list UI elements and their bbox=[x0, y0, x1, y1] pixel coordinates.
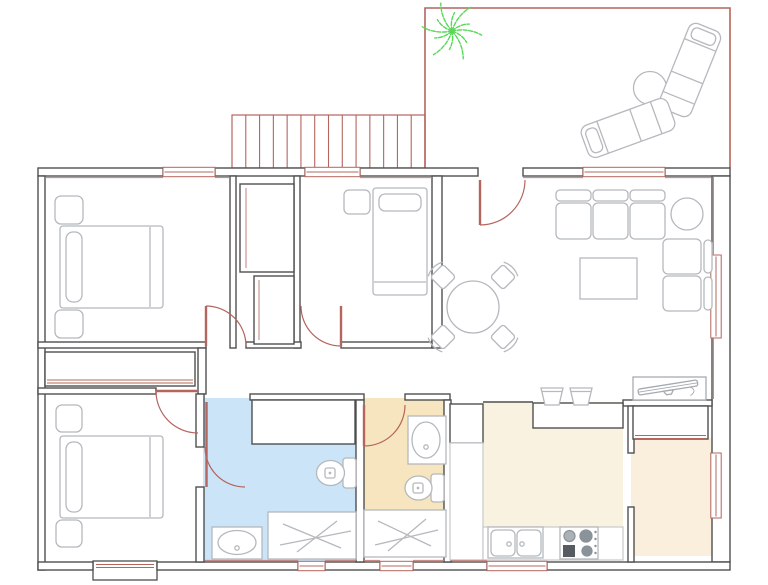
toilet-flush-dot bbox=[417, 487, 420, 490]
palm-frond bbox=[452, 7, 470, 31]
side-table bbox=[671, 198, 703, 230]
wall-top-4 bbox=[523, 168, 583, 176]
corner-sofa-seat bbox=[663, 239, 701, 274]
sofa-back-cushion bbox=[593, 190, 628, 201]
wall-bathrooms-top-a bbox=[250, 394, 364, 400]
floor-plan-canvas bbox=[0, 0, 768, 585]
door-bedroom1 bbox=[206, 306, 246, 346]
wall-bathrooms-top-b bbox=[405, 394, 450, 400]
breakfast-bar bbox=[533, 403, 623, 428]
nightstand bbox=[55, 196, 83, 224]
storage-closet bbox=[633, 406, 708, 439]
wall-top-5 bbox=[665, 168, 730, 176]
wall-living-storage bbox=[623, 400, 712, 406]
wall-bottom-5 bbox=[547, 562, 730, 570]
wall-top-3 bbox=[360, 168, 478, 176]
wall-left bbox=[38, 176, 45, 570]
toilet-tank bbox=[431, 474, 444, 502]
bed-pillow bbox=[66, 232, 82, 302]
living-room-furniture bbox=[541, 190, 712, 405]
corner-sofa-seat bbox=[663, 276, 701, 311]
nightstand bbox=[56, 405, 82, 432]
wall-bottom-3 bbox=[325, 562, 380, 570]
dining-table bbox=[447, 281, 499, 333]
sink-drain bbox=[235, 546, 239, 550]
coffee-table bbox=[580, 258, 637, 299]
door-terrace bbox=[480, 180, 525, 225]
wall-bottom-2 bbox=[157, 562, 298, 570]
wall-bedroom1-bottom bbox=[38, 342, 206, 348]
palm-tree bbox=[422, 3, 481, 59]
exterior-stairs bbox=[232, 115, 425, 168]
kitchen-left-counter bbox=[450, 443, 483, 560]
door-bedroom3 bbox=[156, 391, 198, 433]
kitchen-closet bbox=[450, 404, 483, 443]
stove-knob bbox=[594, 538, 596, 540]
nightstand bbox=[344, 190, 370, 214]
wall-bedroom1-closets bbox=[230, 176, 236, 348]
bed-pillow bbox=[379, 194, 421, 211]
dining-chair bbox=[490, 324, 520, 354]
nightstand bbox=[55, 310, 83, 338]
toilet-flush-dot bbox=[329, 472, 332, 475]
sofa-seat-cushion bbox=[630, 203, 665, 239]
wall-top-2 bbox=[215, 168, 305, 176]
sofa-seat-cushion bbox=[556, 203, 591, 239]
bar-stool bbox=[541, 388, 563, 405]
wall-bedroom2-living bbox=[432, 176, 442, 348]
stove-knob bbox=[594, 531, 596, 533]
stove-burner-square bbox=[563, 545, 575, 557]
sun-lounger-2 bbox=[579, 96, 677, 159]
window-bottom-bath1 bbox=[298, 561, 325, 570]
door-bedroom2-swing-arc bbox=[301, 306, 341, 346]
wall-bottom-4 bbox=[413, 562, 487, 570]
door-bedroom3-swing-arc bbox=[156, 391, 198, 433]
palm-trunk-center bbox=[450, 29, 455, 34]
wall-storage-left-b bbox=[628, 507, 634, 562]
stove-burner bbox=[582, 546, 592, 556]
wall-bottom-1 bbox=[38, 562, 93, 570]
door-bedroom2 bbox=[301, 306, 341, 346]
stove-knob bbox=[594, 545, 596, 547]
stove-burner bbox=[564, 531, 575, 542]
chair-seat bbox=[490, 324, 515, 349]
bedroom2-furniture bbox=[344, 188, 427, 295]
wall-hall-stub bbox=[198, 348, 206, 394]
bedroom3-furniture bbox=[56, 405, 163, 547]
closet-upper bbox=[240, 184, 294, 272]
floor-plan-svg bbox=[0, 0, 768, 585]
window-bedroom1-top bbox=[163, 167, 215, 176]
window-storage-right bbox=[711, 453, 721, 518]
bedroom3-wardrobe bbox=[45, 352, 195, 386]
chair-seat bbox=[490, 264, 515, 289]
nightstand bbox=[56, 520, 82, 547]
sink-basin bbox=[412, 422, 440, 458]
corner-sofa-back bbox=[704, 277, 712, 310]
closet-lower bbox=[254, 276, 294, 344]
wall-closets-bedroom2 bbox=[294, 176, 300, 348]
wall-bedroom2-bottom bbox=[341, 342, 432, 348]
sink-basin bbox=[218, 531, 256, 555]
door-bedroom1-swing-arc bbox=[206, 306, 246, 346]
entry-porch bbox=[93, 561, 157, 580]
wall-top-1 bbox=[38, 168, 163, 176]
palm-frond bbox=[434, 31, 452, 55]
sofa-seat-cushion bbox=[593, 203, 628, 239]
sofa-back-cushion bbox=[630, 190, 665, 201]
wall-bedroom3-bath-a bbox=[196, 394, 204, 447]
bedroom1-furniture bbox=[55, 196, 163, 338]
bar-stool bbox=[570, 388, 592, 405]
dining-chair bbox=[490, 260, 520, 290]
dining-chair bbox=[426, 324, 456, 354]
storage-floor bbox=[631, 438, 712, 556]
window-living-top bbox=[583, 167, 665, 176]
door-terrace-swing-arc bbox=[480, 180, 525, 225]
bed-pillow bbox=[66, 442, 82, 512]
wall-bedroom3-bath-b bbox=[196, 487, 204, 562]
sofa-back-cushion bbox=[556, 190, 591, 201]
window-bottom-kitchen bbox=[487, 561, 547, 570]
window-bedroom2-top bbox=[305, 167, 360, 176]
sink-drain bbox=[520, 542, 524, 546]
wall-bedroom3-top bbox=[38, 388, 156, 394]
corner-sofa-back bbox=[704, 240, 712, 273]
bathroom-closet bbox=[252, 400, 355, 444]
sink-drain bbox=[424, 445, 428, 449]
sink-drain bbox=[507, 542, 511, 546]
palm-frond bbox=[452, 31, 463, 59]
stove-burner bbox=[580, 530, 592, 542]
stove-knob bbox=[594, 552, 596, 554]
kitchen-fixtures bbox=[488, 527, 598, 559]
window-bottom-bath2 bbox=[380, 561, 413, 570]
